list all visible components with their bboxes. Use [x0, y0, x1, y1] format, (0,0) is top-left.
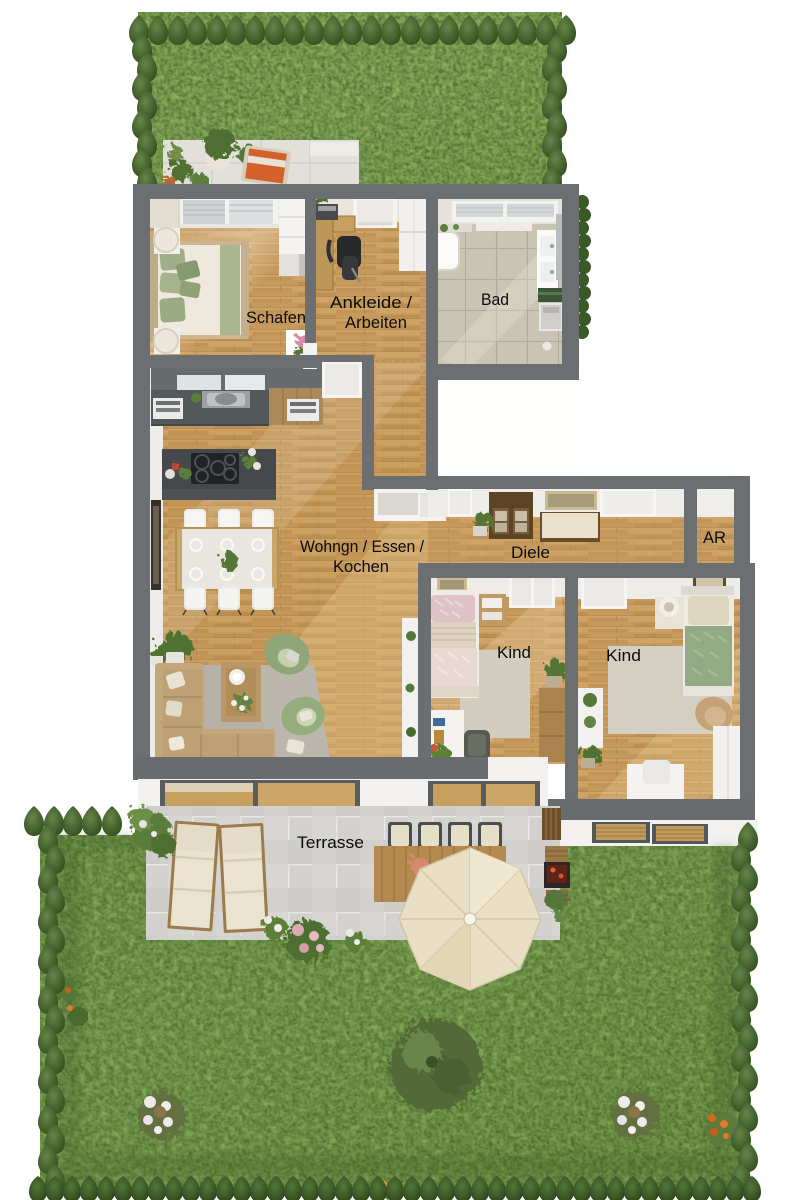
svg-text:Wohngn / Essen /: Wohngn / Essen /	[300, 537, 424, 556]
svg-text:Kind: Kind	[606, 646, 641, 665]
svg-text:Bad: Bad	[481, 290, 509, 309]
svg-text:Terrasse: Terrasse	[297, 833, 364, 852]
svg-text:Ankleide /: Ankleide /	[330, 293, 412, 312]
svg-text:Kochen: Kochen	[333, 557, 389, 576]
svg-text:Arbeiten: Arbeiten	[345, 313, 407, 332]
svg-text:Schafen: Schafen	[246, 308, 306, 327]
svg-text:Diele: Diele	[511, 543, 550, 562]
svg-text:Kind: Kind	[497, 643, 531, 662]
svg-text:AR: AR	[703, 528, 726, 547]
